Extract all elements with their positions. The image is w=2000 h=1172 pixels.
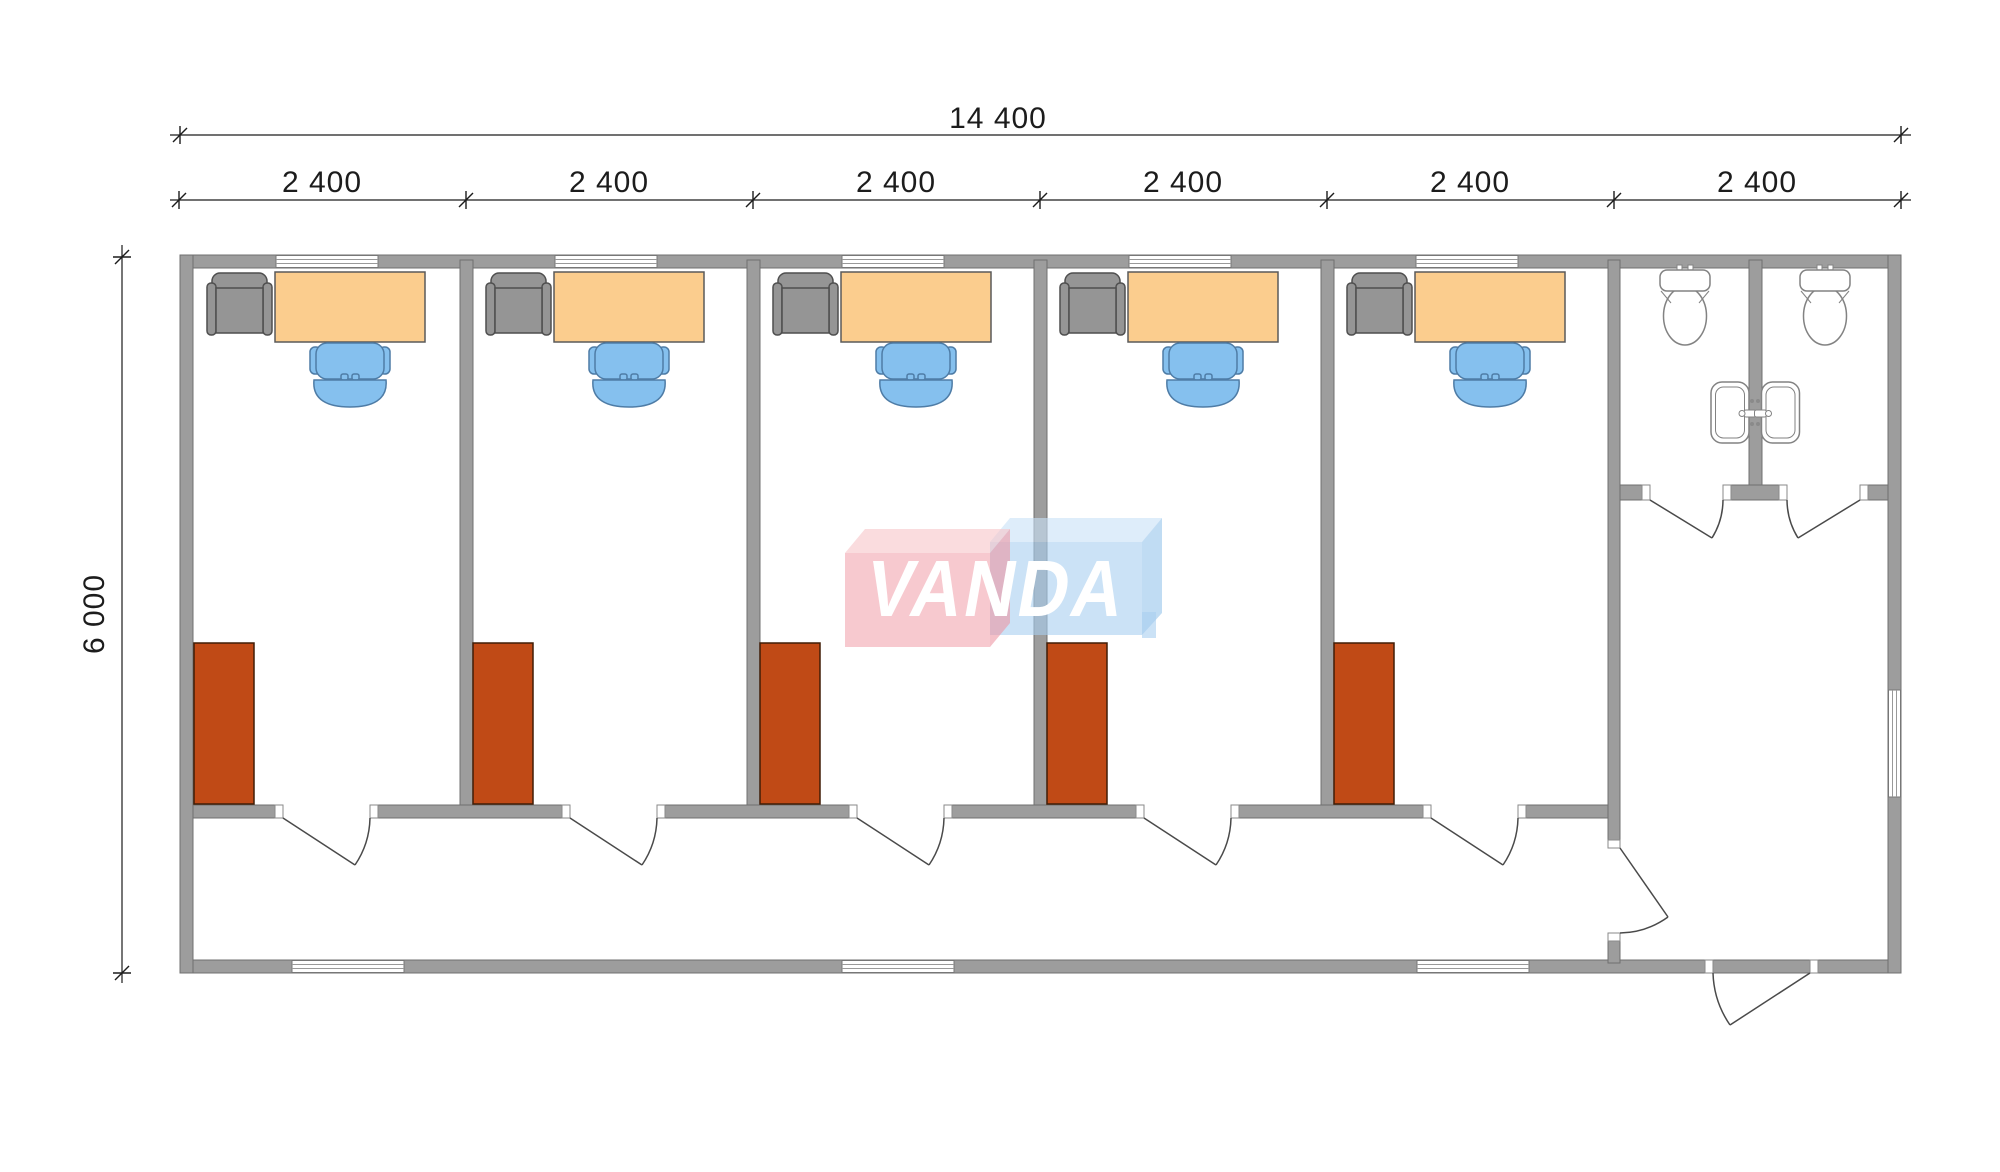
wall-corridor-seg1 [193, 805, 283, 818]
door-room-3 [857, 818, 944, 865]
partition-room2-room3 [747, 260, 760, 818]
dimension-label-bay-1: 2 400 [282, 166, 362, 199]
wall-left [180, 255, 193, 973]
door-corridor-vestibule [1620, 848, 1668, 933]
dimension-label-bay-3: 2 400 [856, 166, 936, 199]
door-entrance [1713, 973, 1810, 1025]
partition-room4-room5 [1321, 260, 1334, 818]
logo-text: VANDA [860, 544, 1134, 633]
toilet-right [1800, 265, 1850, 345]
office-furniture-room-5 [1334, 272, 1565, 804]
dimension-label-bay-2: 2 400 [569, 166, 649, 199]
dimension-label-bay-6: 2 400 [1717, 166, 1797, 199]
door-wc-right [1787, 500, 1860, 538]
wall-sanitary-block [1608, 260, 1620, 848]
door-room-5 [1431, 818, 1518, 865]
door-wc-left [1650, 500, 1723, 538]
door-room-1 [283, 818, 370, 865]
dimension-label-bay-5: 2 400 [1430, 166, 1510, 199]
window-vestibule-east [1889, 690, 1901, 797]
wall-corridor-seg2 [370, 805, 570, 818]
office-furniture-room-2 [473, 272, 704, 804]
wall-corridor-seg5 [1231, 805, 1431, 818]
wall-bottom [180, 960, 1901, 973]
door-room-2 [570, 818, 657, 865]
door-room-4 [1144, 818, 1231, 865]
logo-blue-box-top [990, 518, 1162, 542]
logo-blue-box-tab [1142, 612, 1156, 638]
wall-corridor-seg6 [1518, 805, 1608, 818]
office-furniture-room-1 [194, 272, 425, 804]
dimension-label-overall-width: 14 400 [949, 102, 1047, 135]
wall-right [1888, 255, 1901, 973]
wall-corridor-seg3 [657, 805, 857, 818]
wall-wc-divider [1749, 260, 1762, 500]
floor-plan-page: 14 400 2 400 2 400 2 400 2 400 2 400 2 4… [0, 0, 2000, 1172]
sink-right [1755, 382, 1800, 443]
toilet-left [1660, 265, 1710, 345]
wall-corridor-seg4 [944, 805, 1144, 818]
partition-room1-room2 [460, 260, 473, 818]
wall-wc-front-center [1723, 485, 1787, 500]
sink-left [1711, 382, 1756, 443]
floor-plan-drawing: 14 400 2 400 2 400 2 400 2 400 2 400 2 4… [0, 0, 2000, 1172]
dimension-label-overall-depth: 6 000 [78, 574, 111, 654]
vanda-logo: VANDA [845, 518, 1162, 647]
dimension-label-bay-4: 2 400 [1143, 166, 1223, 199]
